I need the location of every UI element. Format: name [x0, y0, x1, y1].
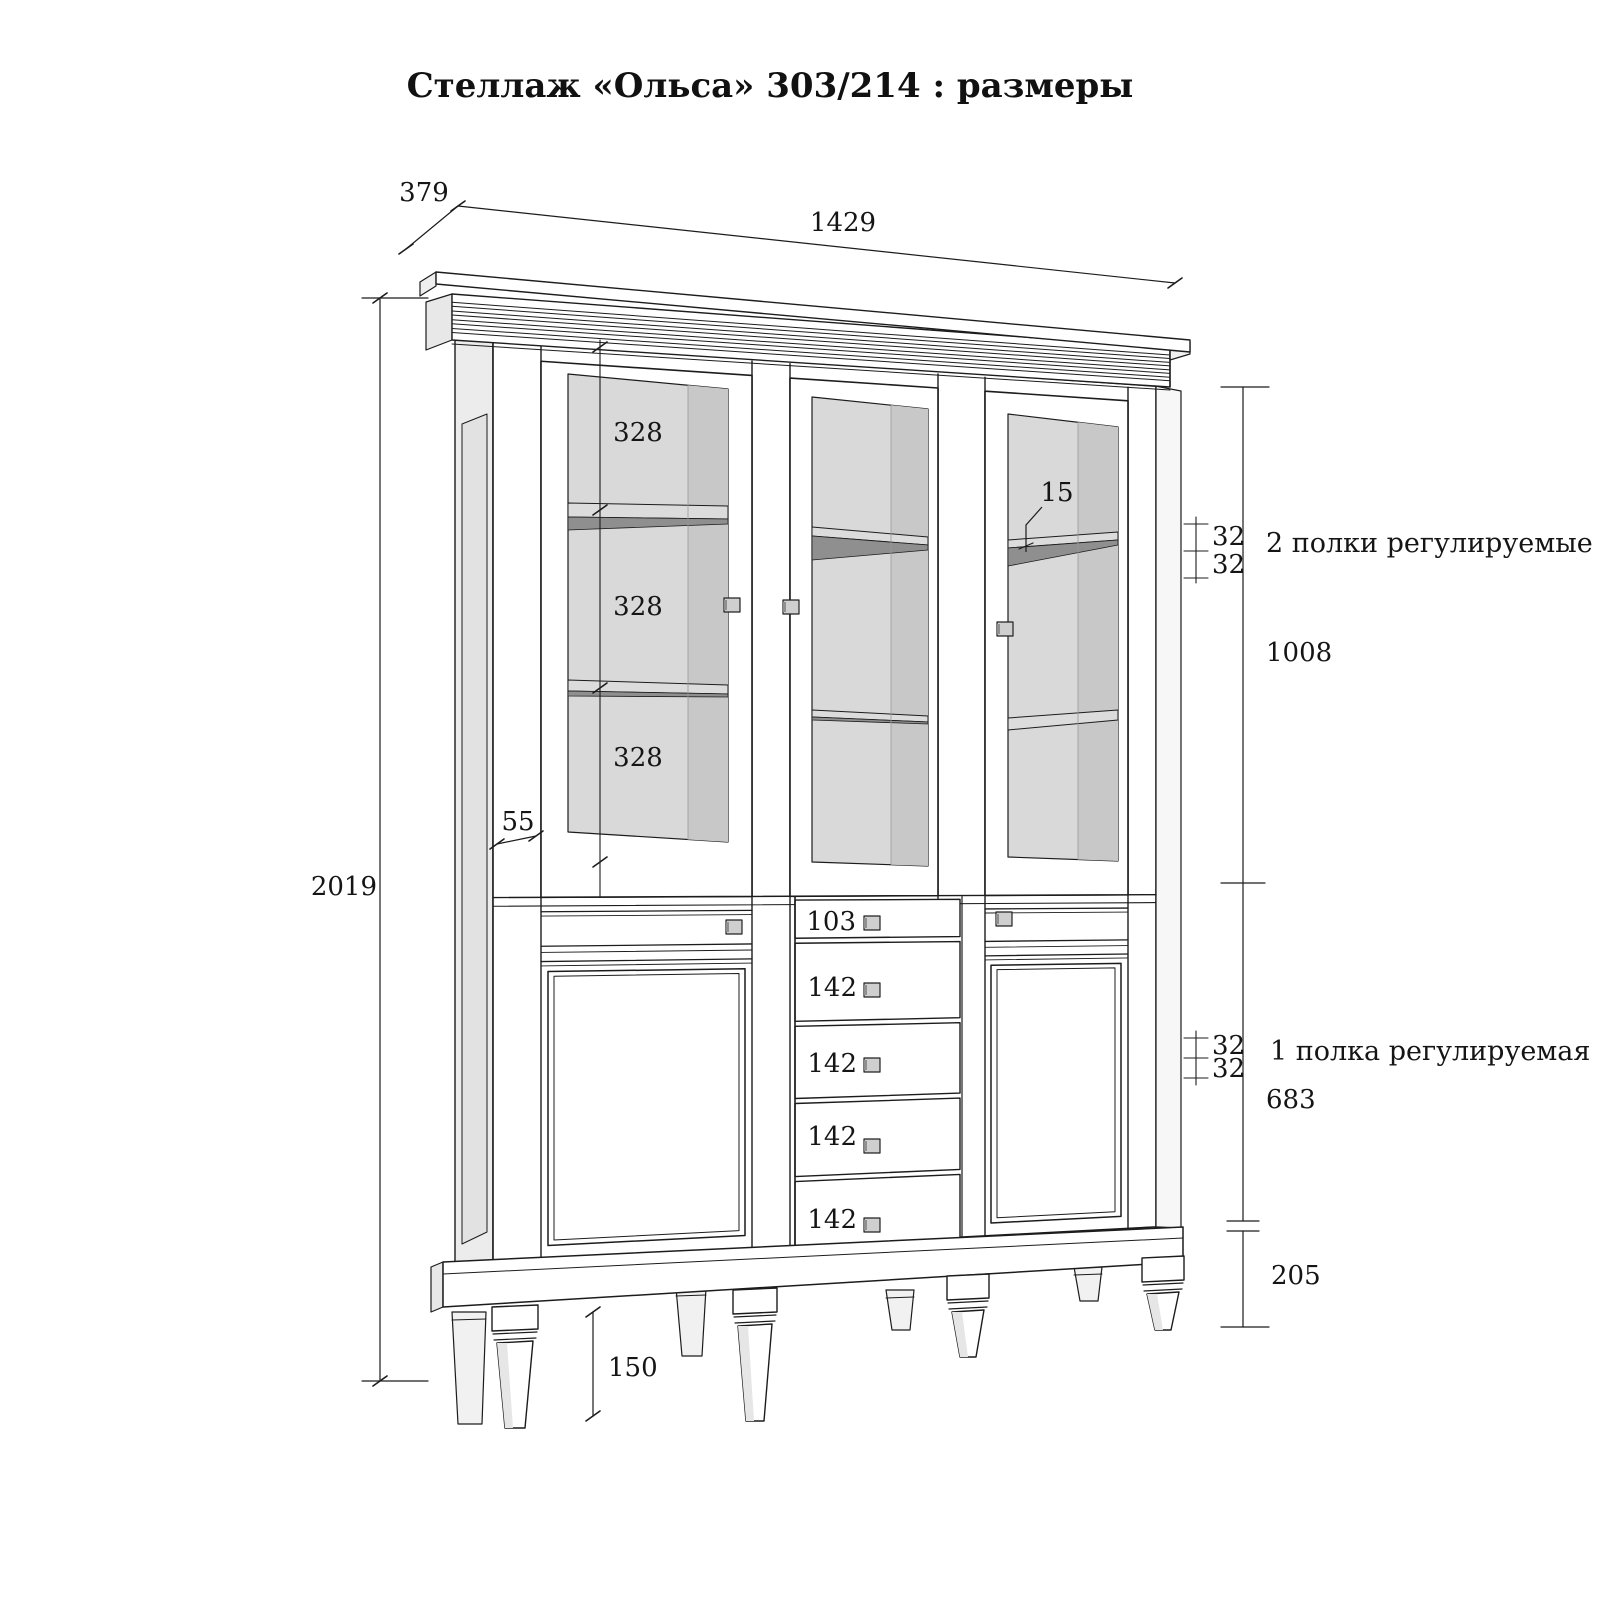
dim-label-pin-top-1: 32 — [1212, 522, 1245, 552]
dim-label-legs: 150 — [608, 1353, 658, 1383]
dim-label-stile: 55 — [501, 807, 534, 837]
dim-label-top-section: 1008 — [1266, 638, 1332, 668]
dim-label-drawer-1: 103 — [806, 907, 856, 937]
dim-label-drawer-3: 142 — [807, 1049, 857, 1079]
dim-label-drawer-2: 142 — [807, 973, 857, 1003]
page-title: Стеллаж «Ольса» 303/214 : размеры — [407, 66, 1134, 106]
dim-label-drawer-5: 142 — [807, 1205, 857, 1235]
furniture-dimension-diagram: Стеллаж «Ольса» 303/214 : размеры 379 14… — [0, 0, 1600, 1600]
dim-label-shelf-thickness: 15 — [1040, 478, 1073, 508]
dim-label-base: 205 — [1271, 1261, 1321, 1291]
cabinet-drawing — [362, 201, 1269, 1428]
page: Стеллаж «Ольса» 303/214 : размеры 379 14… — [0, 0, 1600, 1600]
dim-label-drawer-4: 142 — [807, 1122, 857, 1152]
dim-label-shelf-gap-2: 328 — [613, 592, 663, 622]
annotation-top-shelves: 2 полки регулируемые — [1266, 528, 1593, 559]
dim-label-depth: 379 — [399, 178, 449, 208]
dim-label-bottom-section: 683 — [1266, 1085, 1316, 1115]
dim-label-width: 1429 — [810, 208, 876, 238]
dim-label-shelf-gap-1: 328 — [613, 418, 663, 448]
annotation-bottom-shelf: 1 полка регулируемая — [1270, 1036, 1590, 1067]
dim-label-shelf-gap-3: 328 — [613, 743, 663, 773]
dim-label-pin-bottom-2: 32 — [1212, 1054, 1245, 1084]
dim-label-height: 2019 — [311, 872, 377, 902]
dim-label-pin-top-2: 32 — [1212, 550, 1245, 580]
